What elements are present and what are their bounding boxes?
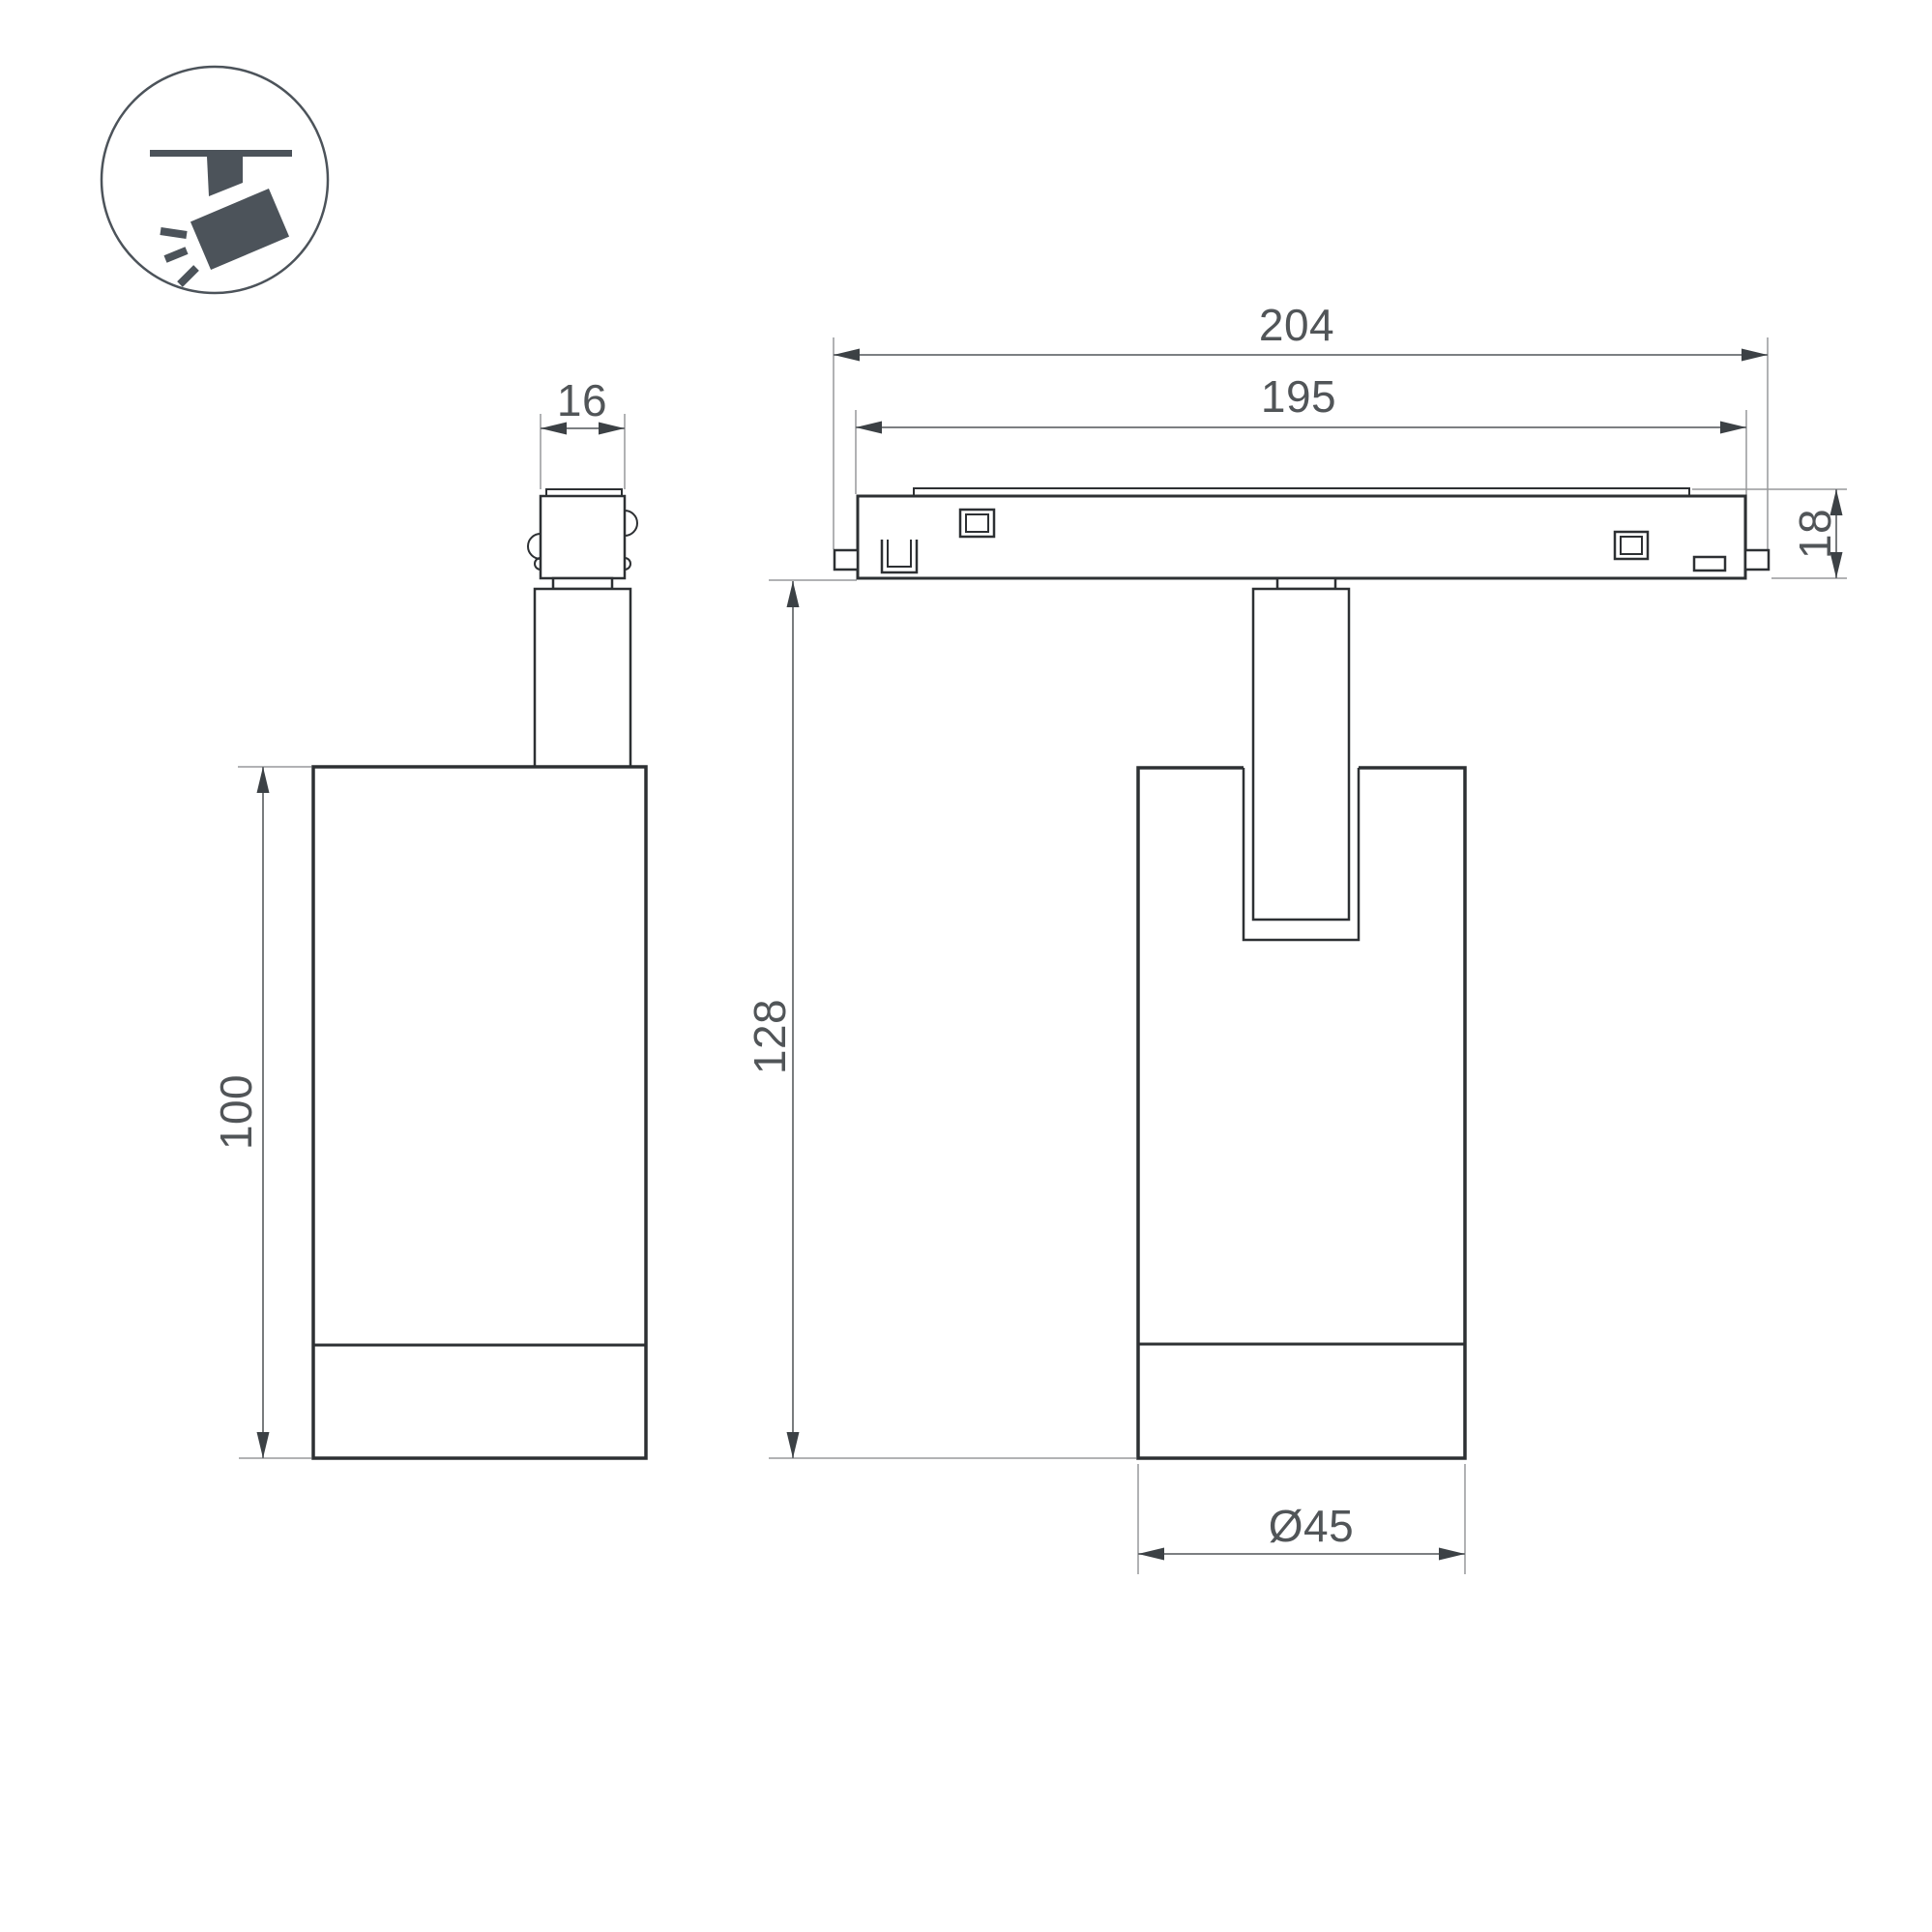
arrowhead bbox=[787, 1432, 800, 1458]
arrowhead bbox=[856, 422, 882, 434]
side-view: 16 100 bbox=[211, 375, 646, 1458]
dim-label-adapter-width: 16 bbox=[557, 375, 607, 425]
dim-label-total-length: 204 bbox=[1259, 300, 1334, 350]
arrowhead bbox=[1138, 1548, 1164, 1561]
arrowhead bbox=[1720, 422, 1746, 434]
side-lamp-body bbox=[313, 767, 646, 1458]
arrowhead bbox=[1439, 1548, 1465, 1561]
dim-label-body-height: 100 bbox=[211, 1074, 261, 1150]
arrowhead bbox=[257, 767, 270, 793]
dim-label-overall-height: 128 bbox=[745, 999, 795, 1074]
front-view: 204 195 18 128 Ø45 bbox=[745, 300, 1847, 1574]
dim-label-track-length: 195 bbox=[1261, 371, 1336, 422]
front-stem bbox=[1253, 589, 1349, 920]
arrowhead bbox=[787, 581, 800, 607]
dim-label-track-height: 18 bbox=[1790, 509, 1840, 559]
icon-spotlight-head bbox=[190, 189, 289, 270]
arrowhead bbox=[834, 349, 860, 362]
ceiling-track-spotlight-icon bbox=[102, 67, 328, 293]
technical-drawing-page: 16 100 bbox=[0, 0, 1932, 1932]
side-neck bbox=[553, 578, 612, 589]
dim-label-body-diameter: Ø45 bbox=[1269, 1501, 1354, 1551]
side-adapter-clip-right-large bbox=[625, 511, 637, 536]
front-track-end-tab-right bbox=[1745, 550, 1769, 570]
arrowhead bbox=[1742, 349, 1768, 362]
icon-ceiling-line bbox=[150, 150, 292, 157]
track-spotlight-dimension-drawing: 16 100 bbox=[0, 0, 1932, 1932]
side-stem bbox=[535, 589, 630, 767]
arrowhead bbox=[257, 1432, 270, 1458]
side-adapter-clip-left-large bbox=[528, 534, 541, 559]
icon-light-rays bbox=[161, 231, 196, 284]
front-neck bbox=[1277, 578, 1335, 589]
side-track-adapter bbox=[541, 496, 625, 578]
front-track-end-tab-left bbox=[834, 550, 858, 570]
icon-mount-stem bbox=[207, 157, 243, 196]
